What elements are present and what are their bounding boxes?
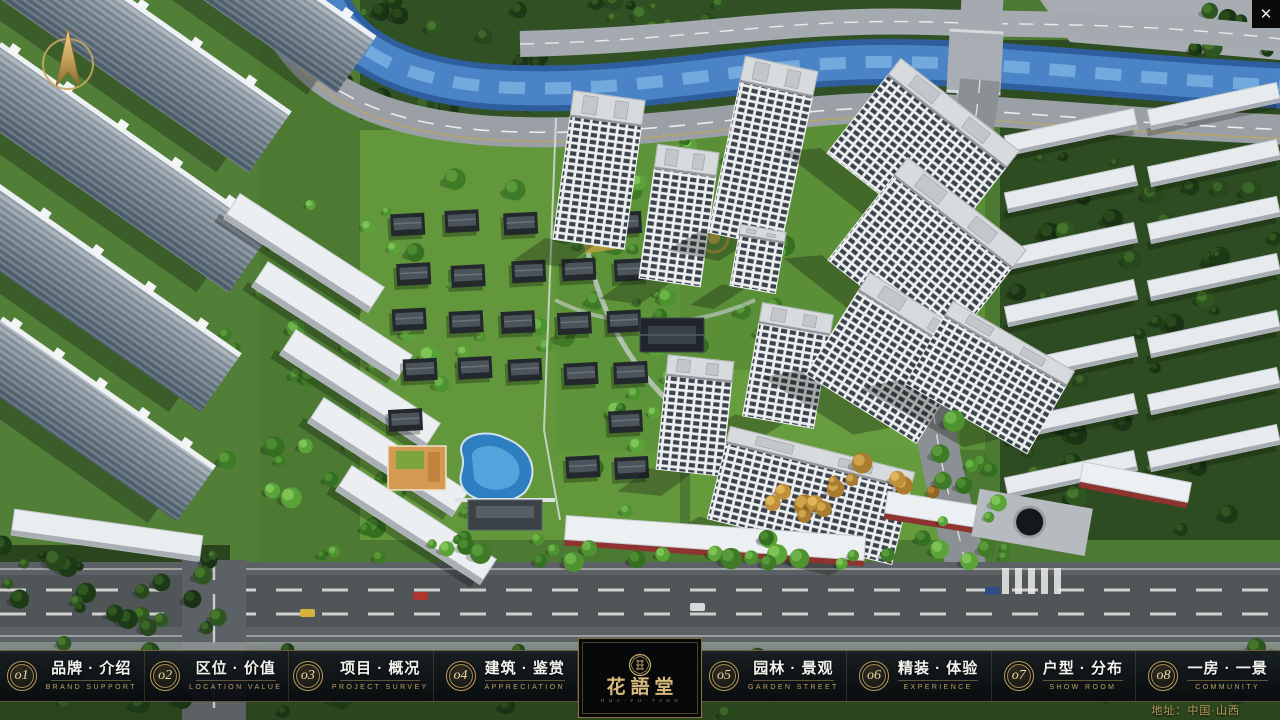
nav-item-subtitle: LOCATION VALUE bbox=[189, 684, 282, 691]
nav-item-subtitle: PROJECT SURVEY bbox=[332, 684, 429, 691]
nav-item-location[interactable]: o2 区位 · 价值 LOCATION VALUE bbox=[145, 651, 290, 701]
nav-item-architecture[interactable]: o4 建筑 · 鉴赏 APPRECIATION bbox=[434, 651, 579, 701]
item-number-badge: o3 bbox=[293, 661, 323, 691]
nav-item-garden[interactable]: o5 园林 · 景观 GARDEN STREET bbox=[702, 651, 847, 701]
nav-item-title: 品牌 · 介绍 bbox=[51, 661, 131, 681]
nav-group-left: o1 品牌 · 介绍 BRAND SUPPORT o2 区位 · 价值 LOCA… bbox=[0, 651, 578, 701]
nav-item-title: 户型 · 分布 bbox=[1043, 661, 1123, 681]
nav-item-floorplan[interactable]: o7 户型 · 分布 SHOW ROOM bbox=[992, 651, 1137, 701]
nav-item-subtitle: BRAND SUPPORT bbox=[46, 684, 137, 691]
item-number-badge: o8 bbox=[1148, 661, 1178, 691]
item-number-badge: o5 bbox=[709, 661, 739, 691]
nav-item-title: 一房 · 一景 bbox=[1187, 661, 1267, 681]
nav-item-brand[interactable]: o1 品牌 · 介绍 BRAND SUPPORT bbox=[0, 651, 145, 701]
close-button[interactable]: ✕ bbox=[1252, 0, 1280, 28]
nav-item-title: 精装 · 体验 bbox=[898, 661, 978, 681]
nav-item-subtitle: EXPERIENCE bbox=[904, 684, 973, 691]
nav-group-right: o5 园林 · 景观 GARDEN STREET o6 精装 · 体验 EXPE… bbox=[702, 651, 1280, 701]
project-logo[interactable]: 花語堂 H U A · Y U · T A N G bbox=[578, 638, 702, 718]
gatehouse bbox=[640, 318, 704, 352]
close-icon: ✕ bbox=[1260, 5, 1273, 23]
masterplan-render bbox=[0, 0, 1280, 720]
nav-item-title: 园林 · 景观 bbox=[753, 661, 833, 681]
front-gate bbox=[455, 498, 555, 530]
item-number-badge: o2 bbox=[150, 661, 180, 691]
nav-item-project[interactable]: o3 项目 · 概况 PROJECT SURVEY bbox=[289, 651, 434, 701]
nav-item-subtitle: COMMUNITY bbox=[1195, 684, 1260, 691]
nav-item-subtitle: APPRECIATION bbox=[485, 684, 565, 691]
nav-item-title: 项目 · 概况 bbox=[340, 661, 420, 681]
item-number-badge: o6 bbox=[859, 661, 889, 691]
item-number-badge: o7 bbox=[1004, 661, 1034, 691]
nav-item-title: 建筑 · 鉴赏 bbox=[485, 661, 565, 681]
nav-item-interior[interactable]: o6 精装 · 体验 EXPERIENCE bbox=[847, 651, 992, 701]
nav-item-scenery[interactable]: o8 一房 · 一景 COMMUNITY bbox=[1136, 651, 1280, 701]
item-number-badge: o4 bbox=[446, 661, 476, 691]
project-address: 地址：中国·山西 bbox=[1151, 702, 1240, 718]
nav-item-subtitle: SHOW ROOM bbox=[1049, 684, 1116, 691]
nav-item-subtitle: GARDEN STREET bbox=[748, 684, 839, 691]
project-name-latin: H U A · Y U · T A N G bbox=[601, 698, 680, 703]
project-seal-icon bbox=[628, 653, 652, 677]
orange-building bbox=[388, 446, 446, 490]
compass-icon bbox=[36, 24, 100, 100]
item-number-badge: o1 bbox=[7, 661, 37, 691]
nav-item-title: 区位 · 价值 bbox=[196, 661, 276, 681]
project-name: 花語堂 bbox=[606, 678, 678, 697]
